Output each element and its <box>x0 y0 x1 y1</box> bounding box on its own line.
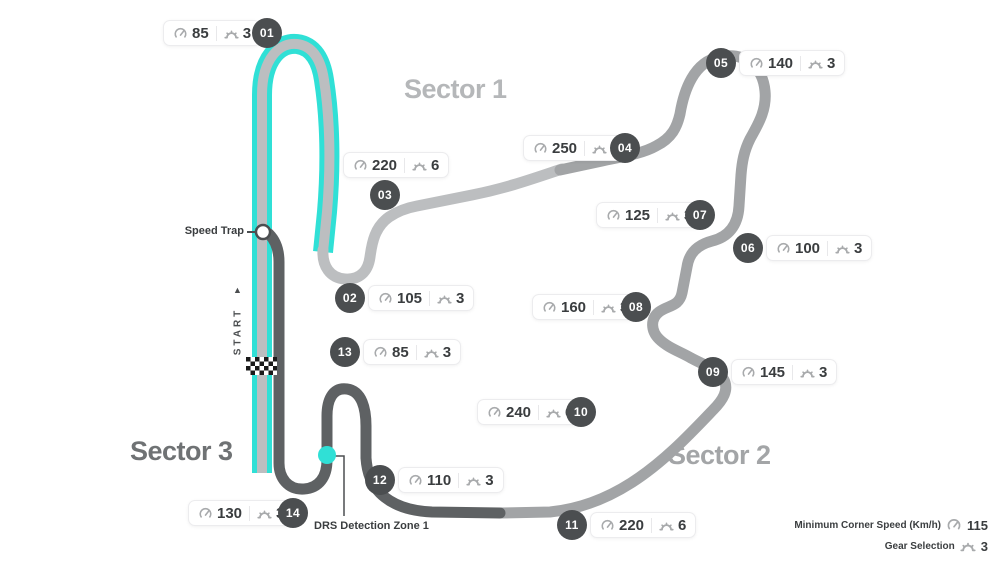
gear-icon <box>257 506 272 521</box>
corner-speed-value: 145 <box>760 364 785 381</box>
pill-divider <box>458 473 459 488</box>
corner-speed: 130 <box>198 505 242 522</box>
pill-divider <box>538 405 539 420</box>
corner-speed-value: 125 <box>625 207 650 224</box>
pill-divider <box>827 241 828 256</box>
legend-min-corner-speed-label: Minimum Corner Speed (Km/h) <box>794 520 941 531</box>
corner-speed-value: 220 <box>372 157 397 174</box>
gear-icon <box>466 473 481 488</box>
corner-gear: 3 <box>437 290 464 307</box>
track-sector1-path <box>323 169 562 279</box>
pill-divider <box>416 345 417 360</box>
speedometer-icon <box>408 473 423 488</box>
pill-divider <box>800 56 801 71</box>
corner-info-pill-05: 1403 <box>739 50 845 76</box>
gear-icon <box>808 56 823 71</box>
corner-speed: 85 <box>173 25 209 42</box>
corner-speed-value: 100 <box>795 240 820 257</box>
gear-icon <box>601 300 616 315</box>
drs-detection-dot <box>318 446 336 464</box>
corner-badge-02: 02 <box>335 283 365 313</box>
speedometer-icon <box>600 518 615 533</box>
speedometer-icon <box>946 517 962 533</box>
corner-speed: 160 <box>542 299 586 316</box>
speedometer-icon <box>533 141 548 156</box>
pill-divider <box>216 26 217 41</box>
speedometer-icon <box>353 158 368 173</box>
corner-speed-value: 250 <box>552 140 577 157</box>
corner-gear: 6 <box>412 157 439 174</box>
corner-info-pill-06: 1003 <box>766 235 872 261</box>
gear-icon <box>835 241 850 256</box>
corner-speed-value: 160 <box>561 299 586 316</box>
corner-gear-value: 3 <box>485 472 493 489</box>
corner-badge-14: 14 <box>278 498 308 528</box>
legend: Minimum Corner Speed (Km/h) 115 Gear Sel… <box>794 517 988 554</box>
gear-icon <box>592 141 607 156</box>
corner-gear-value: 3 <box>456 290 464 307</box>
gear-icon <box>546 405 561 420</box>
corner-speed: 140 <box>749 55 793 72</box>
drs-detection-connector <box>335 456 344 516</box>
gear-icon <box>800 365 815 380</box>
corner-gear-value: 6 <box>431 157 439 174</box>
speedometer-icon <box>542 300 557 315</box>
corner-info-pill-13: 853 <box>363 339 461 365</box>
pill-divider <box>429 291 430 306</box>
corner-speed-value: 105 <box>397 290 422 307</box>
pill-divider <box>249 506 250 521</box>
corner-badge-05: 05 <box>706 48 736 78</box>
corner-speed: 250 <box>533 140 577 157</box>
corner-gear-value: 3 <box>443 344 451 361</box>
track-map: Sector 1 Sector 2 Sector 3 Speed Trap ▲ … <box>0 0 1000 562</box>
start-finish-checkered-flag <box>246 357 277 375</box>
corner-speed: 85 <box>373 344 409 361</box>
speedometer-icon <box>749 56 764 71</box>
speedometer-icon <box>173 26 188 41</box>
gear-icon <box>659 518 674 533</box>
corner-badge-03: 03 <box>370 180 400 210</box>
speed-trap-marker <box>256 225 270 239</box>
corner-speed-value: 240 <box>506 404 531 421</box>
legend-min-corner-speed-value: 115 <box>967 518 988 533</box>
corner-speed-value: 130 <box>217 505 242 522</box>
pill-divider <box>657 208 658 223</box>
corner-speed-value: 220 <box>619 517 644 534</box>
corner-badge-08: 08 <box>621 292 651 322</box>
track-sector2-path <box>500 56 765 513</box>
corner-gear: 6 <box>659 517 686 534</box>
corner-speed-value: 110 <box>427 472 451 489</box>
corner-gear: 3 <box>224 25 251 42</box>
corner-info-pill-11: 2206 <box>590 512 696 538</box>
speedometer-icon <box>373 345 388 360</box>
pill-divider <box>651 518 652 533</box>
corner-gear: 3 <box>800 364 827 381</box>
corner-gear: 3 <box>466 472 493 489</box>
corner-speed: 220 <box>600 517 644 534</box>
corner-gear: 3 <box>835 240 862 257</box>
gear-icon <box>224 26 239 41</box>
corner-info-pill-02: 1053 <box>368 285 474 311</box>
pill-divider <box>593 300 594 315</box>
pill-divider <box>584 141 585 156</box>
speedometer-icon <box>741 365 756 380</box>
corner-info-pill-03: 2206 <box>343 152 449 178</box>
legend-row-min-corner-speed: Minimum Corner Speed (Km/h) 115 <box>794 517 988 533</box>
gear-icon <box>665 208 680 223</box>
corner-badge-12: 12 <box>365 465 395 495</box>
corner-speed-value: 85 <box>392 344 409 361</box>
corner-badge-09: 09 <box>698 357 728 387</box>
corner-speed-value: 140 <box>768 55 793 72</box>
corner-speed: 240 <box>487 404 531 421</box>
corner-gear-value: 3 <box>243 25 251 42</box>
corner-badge-13: 13 <box>330 337 360 367</box>
speedometer-icon <box>776 241 791 256</box>
corner-badge-04: 04 <box>610 133 640 163</box>
corner-gear-value: 6 <box>678 517 686 534</box>
corner-speed: 105 <box>378 290 422 307</box>
legend-row-gear-selection: Gear Selection 3 <box>885 538 988 554</box>
corner-badge-01: 01 <box>252 18 282 48</box>
corner-gear: 3 <box>424 344 451 361</box>
gear-icon <box>424 345 439 360</box>
legend-gear-selection-label: Gear Selection <box>885 541 955 552</box>
corner-gear-value: 3 <box>819 364 827 381</box>
corner-badge-11: 11 <box>557 510 587 540</box>
corner-speed-value: 85 <box>192 25 209 42</box>
corner-badge-10: 10 <box>566 397 596 427</box>
corner-speed: 145 <box>741 364 785 381</box>
speedometer-icon <box>378 291 393 306</box>
corner-gear: 3 <box>808 55 835 72</box>
corner-speed: 220 <box>353 157 397 174</box>
speedometer-icon <box>487 405 502 420</box>
corner-info-pill-12: 1103 <box>398 467 504 493</box>
corner-badge-07: 07 <box>685 200 715 230</box>
legend-gear-selection-value: 3 <box>981 539 988 554</box>
gear-icon <box>412 158 427 173</box>
corner-gear-value: 3 <box>827 55 835 72</box>
pill-divider <box>404 158 405 173</box>
pill-divider <box>792 365 793 380</box>
corner-speed: 100 <box>776 240 820 257</box>
gear-icon <box>437 291 452 306</box>
corner-speed: 125 <box>606 207 650 224</box>
corner-info-pill-01: 853 <box>163 20 261 46</box>
gear-icon <box>960 538 976 554</box>
speedometer-icon <box>606 208 621 223</box>
corner-badge-06: 06 <box>733 233 763 263</box>
corner-speed: 110 <box>408 472 451 489</box>
corner-info-pill-09: 1453 <box>731 359 837 385</box>
corner-gear-value: 3 <box>854 240 862 257</box>
speedometer-icon <box>198 506 213 521</box>
